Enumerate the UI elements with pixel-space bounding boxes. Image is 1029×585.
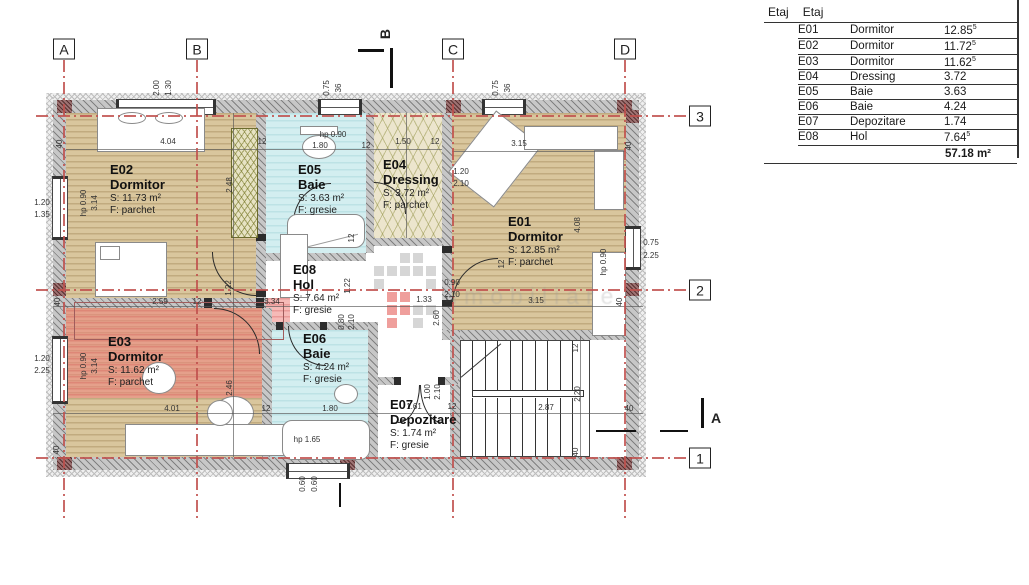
room-label-e07: E07 Depozitare S: 1.74 m² F: gresie <box>390 398 456 453</box>
wall-e07-top-right <box>444 377 458 385</box>
stair-tread <box>522 341 523 390</box>
dim-label: 2.20 <box>574 386 582 402</box>
grid-bubble-col-A: A <box>53 39 75 60</box>
legend-total: 57.18 m² <box>764 146 1017 162</box>
legend-cell-name: Dressing <box>850 71 944 83</box>
legend-bottom-rule <box>764 163 1017 164</box>
dim-label: 36 <box>335 84 343 93</box>
grid-bubble-col-B: B <box>186 39 208 60</box>
dim-label: 12 <box>498 260 506 269</box>
legend-cell-code: E08 <box>798 131 850 144</box>
dim-label: 0.75 <box>643 239 659 247</box>
legend-cell-area: 12.855 <box>944 24 1017 37</box>
stair-tread <box>472 398 473 456</box>
grid-bubble-col-C: C <box>442 39 464 60</box>
dim-label: 3.15 <box>528 297 544 305</box>
dim-label: 4.08 <box>574 217 582 233</box>
stair-tread <box>547 341 548 390</box>
legend-area-sup: 5 <box>973 24 977 31</box>
legend-cell-name: Depozitare <box>850 116 944 128</box>
dim-label: 4.01 <box>164 405 180 413</box>
toilet-e06 <box>334 384 358 404</box>
legend-cell-code: E02 <box>798 40 850 53</box>
cabinet-e01 <box>594 150 624 210</box>
door-jamb <box>256 290 266 297</box>
window-e02-left <box>52 176 68 240</box>
dim-label: hp 0.90 <box>320 131 347 139</box>
axis-line-col-A <box>63 60 65 522</box>
legend-cell-area: 3.72 <box>944 71 1017 83</box>
dim-label: 40 <box>625 405 634 413</box>
dim-label: 3.14 <box>91 358 99 374</box>
room-label-e05: E05 Baie S: 3.63 m² F: gresie <box>298 163 344 218</box>
dim-label: 2.10 <box>453 180 469 188</box>
legend-row: E07Depozitare1.74 <box>798 115 1017 130</box>
legend-cell-code: E06 <box>798 101 850 113</box>
grid-bubble-row-1: 1 <box>689 448 711 469</box>
section-b-bar-top <box>390 48 393 88</box>
stair-tread <box>560 341 561 390</box>
window-e01-right <box>625 226 641 270</box>
legend-row: E05Baie3.63 <box>798 85 1017 100</box>
legend-cell-area: 11.625 <box>944 56 1017 69</box>
dim-label: 12 <box>431 138 440 146</box>
dim-label: 3.14 <box>91 195 99 211</box>
legend-table: Etaj Etaj E01Dormitor12.855E02Dormitor11… <box>764 3 1017 164</box>
axis-line-row-2 <box>36 289 688 291</box>
watermark-square <box>426 279 436 289</box>
dim-line <box>452 151 626 152</box>
dim-label: 3.15 <box>511 140 527 148</box>
stair-tread <box>510 341 511 390</box>
watermark-square <box>426 266 436 276</box>
floor-plan-sheet: imobiliare B A E02 Dormitor S: 11.73 m² … <box>0 0 1029 585</box>
legend-cell-name: Dormitor <box>850 24 944 37</box>
dim-label: 2.59 <box>152 298 168 306</box>
legend-cell-area: 11.725 <box>944 40 1017 53</box>
stair-tread <box>485 341 486 390</box>
stair-tread <box>535 341 536 390</box>
legend-cell-area: 4.24 <box>944 101 1017 113</box>
room-label-e03: E03 Dormitor S: 11.62 m² F: parchet <box>108 335 163 390</box>
stair-tread <box>522 398 523 456</box>
legend-cell-area: 3.63 <box>944 86 1017 98</box>
dim-label: 12 <box>572 344 580 353</box>
legend-row: E04Dressing3.72 <box>798 70 1017 85</box>
wardrobe-e02 <box>231 128 258 238</box>
dim-label: 2.46 <box>226 380 234 396</box>
legend-cell-name: Baie <box>850 86 944 98</box>
axis-line-row-3 <box>36 115 688 117</box>
dim-label: 1.30 <box>165 80 173 96</box>
watermark-square <box>374 279 384 289</box>
legend-header: Etaj Etaj <box>764 3 1017 22</box>
dim-label: 1.35 <box>34 211 50 219</box>
dim-label: 1.22 <box>225 280 233 296</box>
watermark-square <box>400 266 410 276</box>
dim-label: 1.20 <box>453 168 469 176</box>
grid-bubble-row-2: 2 <box>689 280 711 301</box>
pillow <box>155 112 183 124</box>
dim-label: 2.10 <box>348 314 356 330</box>
dim-label: 40 <box>56 140 64 149</box>
dim-label: 40 <box>53 446 61 455</box>
insulation-right <box>639 93 646 477</box>
dim-line <box>53 306 643 307</box>
dim-label: 12 <box>445 296 454 304</box>
dim-label: 40 <box>572 448 580 457</box>
bed-e03 <box>74 302 284 340</box>
room-label-e01: E01 Dormitor S: 12.85 m² F: parchet <box>508 215 563 270</box>
dim-label: 12 <box>262 405 271 413</box>
dim-label: 0.60 <box>311 476 319 492</box>
dim-line <box>53 413 643 414</box>
section-a-bar-h2 <box>596 430 636 432</box>
dim-label: 0.80 <box>338 314 346 330</box>
legend-cell-name: Dormitor <box>850 56 944 69</box>
dim-label: 0.90 <box>444 279 460 287</box>
dim-label: 12 <box>193 298 202 306</box>
dim-label: 1.20 <box>34 199 50 207</box>
stair-tread <box>497 341 498 390</box>
dim-label: 0.75 <box>492 80 500 96</box>
dim-label: 1.80 <box>322 405 338 413</box>
legend-row: E06Baie4.24 <box>798 100 1017 115</box>
legend-cell-name: Hol <box>850 131 944 144</box>
section-b-bar-top-h <box>358 49 384 52</box>
legend-cell-area: 7.645 <box>944 131 1017 144</box>
legend-cell-name: Baie <box>850 101 944 113</box>
wall-e04-hol <box>374 238 442 246</box>
dim-label: 2.25 <box>643 252 659 260</box>
section-a-label: A <box>711 410 721 426</box>
dim-label: 1.50 <box>395 138 411 146</box>
dim-label: 12 <box>258 138 267 146</box>
dim-label: 12 <box>348 234 356 243</box>
dim-label: 12 <box>362 142 371 150</box>
dim-label: 36 <box>504 84 512 93</box>
dim-line <box>233 113 234 457</box>
legend-cell-name: Dormitor <box>850 40 944 53</box>
legend-cell-area: 1.74 <box>944 116 1017 128</box>
dim-label: 0.75 <box>323 80 331 96</box>
dim-label: 2.25 <box>34 367 50 375</box>
axis-line-col-D <box>624 60 626 522</box>
dim-label: 40 <box>54 298 62 307</box>
watermark-square <box>400 253 410 263</box>
dim-label: 40 <box>625 142 633 151</box>
legend-area-sup: 5 <box>966 131 970 138</box>
dim-label: 1.33 <box>416 296 432 304</box>
axis-line-row-1 <box>36 457 688 459</box>
pillow <box>118 112 146 124</box>
staircase <box>460 340 590 457</box>
dim-label: 2.00 <box>153 80 161 96</box>
legend-rows: E01Dormitor12.855E02Dormitor11.725E03Dor… <box>764 23 1017 146</box>
dresser-e01 <box>524 126 618 150</box>
legend-cell-code: E07 <box>798 116 850 128</box>
watermark-square <box>387 318 397 328</box>
legend-cell-code: E04 <box>798 71 850 83</box>
dim-label: 2.48 <box>226 177 234 193</box>
stair-tread <box>497 398 498 456</box>
axis-line-col-B <box>196 60 198 522</box>
dim-label: 1.20 <box>34 355 50 363</box>
dim-label: hp 0.90 <box>80 353 88 380</box>
legend-row: E01Dormitor12.855 <box>798 23 1017 39</box>
watermark-square <box>413 266 423 276</box>
watermark-square <box>374 266 384 276</box>
dim-label: 1.22 <box>344 278 352 294</box>
legend-header-col1: Etaj <box>768 5 789 19</box>
dim-label: 40 <box>616 298 624 307</box>
window-e05-top <box>318 99 362 115</box>
dim-label: 1.80 <box>312 142 328 150</box>
window-e03-left <box>52 336 68 404</box>
room-label-e06: E06 Baie S: 4.24 m² F: gresie <box>303 332 349 387</box>
stair-railing <box>472 390 584 397</box>
section-b-bar-bottom <box>339 483 341 507</box>
dim-label: 2.87 <box>538 404 554 412</box>
room-label-e02: E02 Dormitor S: 11.73 m² F: parchet <box>110 163 165 218</box>
watermark-square <box>413 318 423 328</box>
stair-tread <box>485 398 486 456</box>
legend-cell-code: E05 <box>798 86 850 98</box>
room-label-e04: E04 Dressing S: 3.72 m² F: parchet <box>383 158 439 213</box>
watermark-square <box>387 292 397 302</box>
dim-label: 4.04 <box>160 138 176 146</box>
grid-bubble-row-3: 3 <box>689 106 711 127</box>
stair-tread <box>560 398 561 456</box>
wall-e05-e04 <box>366 113 374 253</box>
stair-tread <box>535 398 536 456</box>
insulation-left <box>46 93 53 477</box>
dim-line <box>66 149 442 150</box>
stair-tread <box>510 398 511 456</box>
legend-area-sup: 5 <box>972 56 976 63</box>
section-a-bar <box>701 398 704 428</box>
legend-area-sup: 5 <box>972 40 976 47</box>
watermark-square <box>400 292 410 302</box>
window-e01-top <box>482 99 526 115</box>
watermark-square <box>387 266 397 276</box>
room-label-e08: E08 Hol S: 7.64 m² F: gresie <box>293 263 339 318</box>
dim-label: 3.34 <box>264 298 280 306</box>
dim-label: hp 0.90 <box>600 249 608 276</box>
dim-label: hp 1.65 <box>294 436 321 444</box>
dim-label: 2.60 <box>433 310 441 326</box>
legend-cell-code: E01 <box>798 24 850 37</box>
section-a-bar-h <box>660 430 688 432</box>
grid-bubble-col-D: D <box>614 39 636 60</box>
legend-row: E08Hol7.645 <box>798 130 1017 146</box>
legend-header-col2: Etaj <box>803 5 824 19</box>
legend-right-border <box>1017 0 1019 158</box>
pillow <box>100 246 120 260</box>
dim-label: hp 0.90 <box>80 190 88 217</box>
legend-cell-code: E03 <box>798 56 850 69</box>
watermark-square <box>413 253 423 263</box>
dim-label: 0.60 <box>299 476 307 492</box>
legend-row: E02Dormitor11.725 <box>798 39 1017 55</box>
door-jamb <box>394 377 401 385</box>
door-jamb <box>442 246 452 253</box>
section-b-label: B <box>377 29 393 39</box>
legend-row: E03Dormitor11.625 <box>798 55 1017 71</box>
